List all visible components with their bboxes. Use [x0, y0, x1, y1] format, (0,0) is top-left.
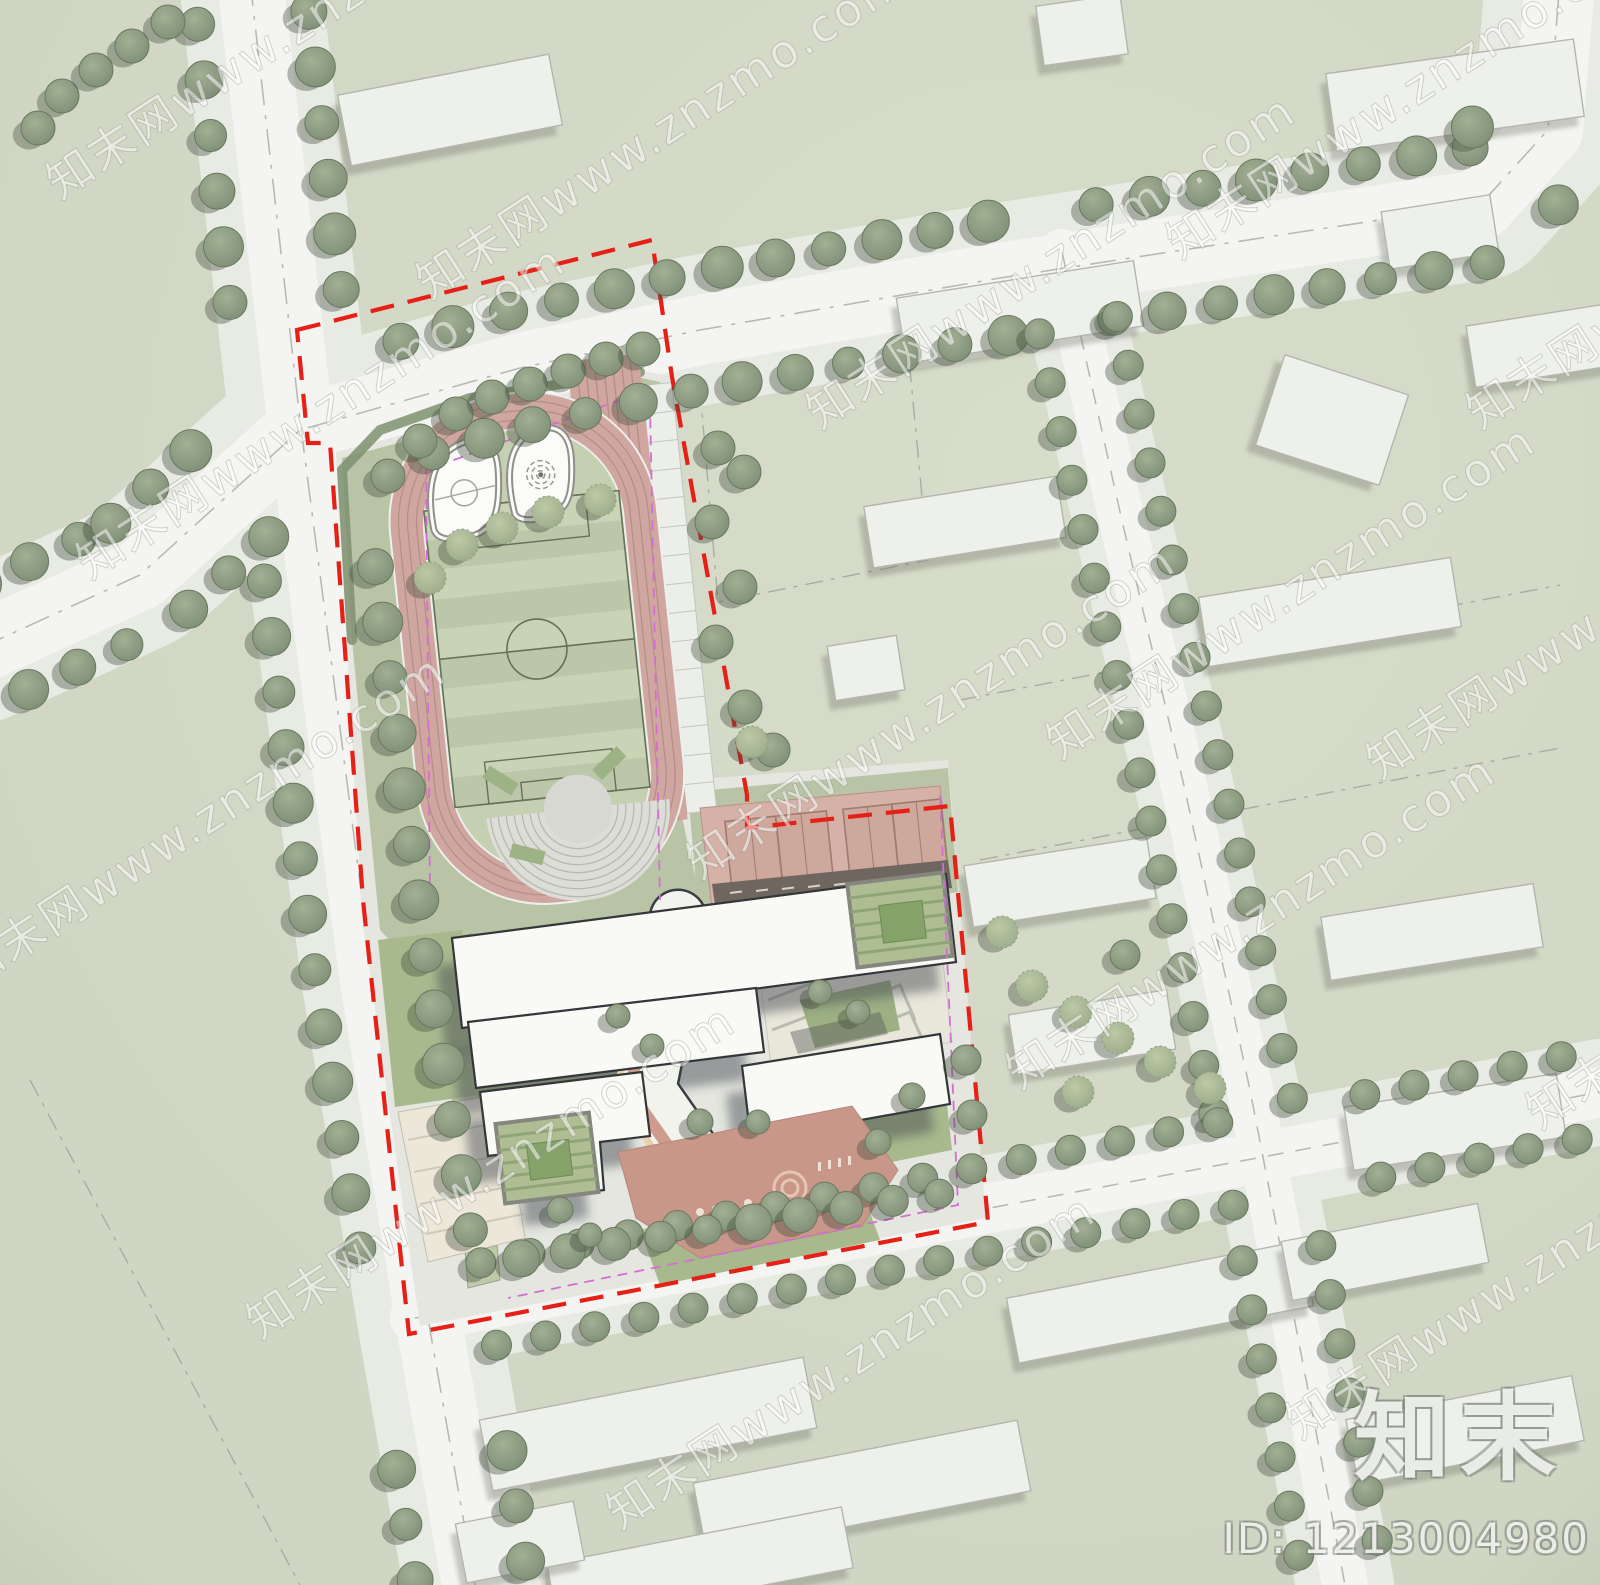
site-plan-drawing: 知末网www.znzmo.com知末网www.znzmo.com知末网www.z… — [0, 0, 1600, 1585]
asset-id-label: ID: 1213004980 — [1223, 1514, 1590, 1563]
site-plan-screenshot: 知末网www.znzmo.com知末网www.znzmo.com知末网www.z… — [0, 0, 1600, 1585]
vignette — [0, 0, 1600, 1585]
znzmo-logo: 知末 — [1354, 1360, 1566, 1499]
